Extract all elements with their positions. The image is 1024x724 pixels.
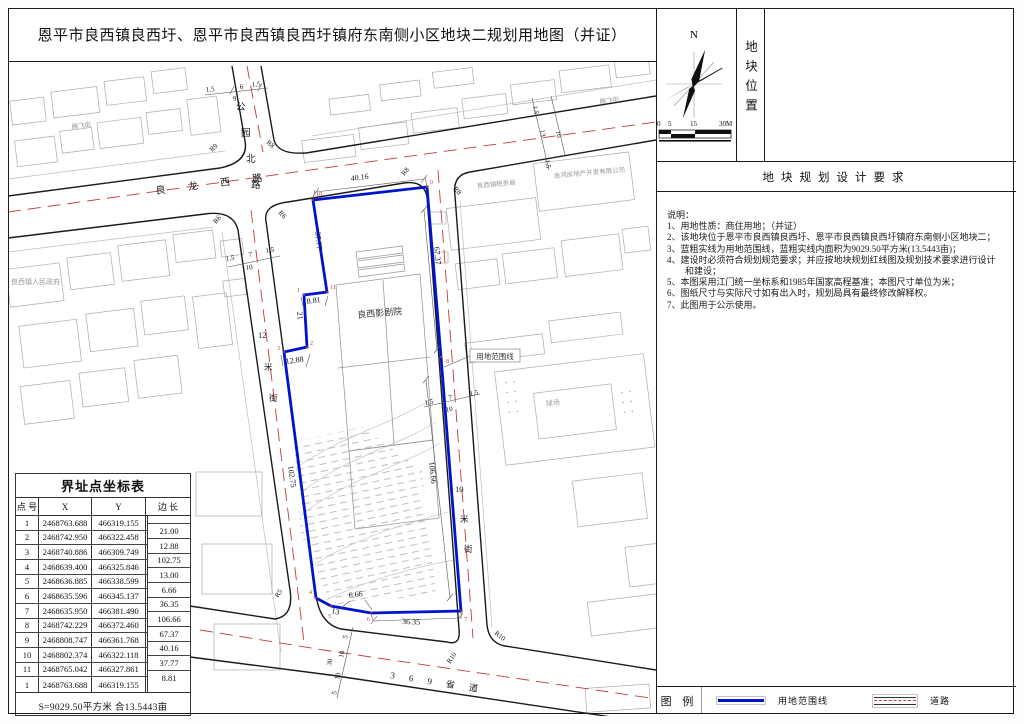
cell-x: 2468636.885 [39,575,92,589]
sheet-title: 恩平市良西镇良西圩、恩平市良西镇良西圩镇府东南侧小区地块二规划用地图（并证） [8,8,656,62]
table-row: 52468636.885466338.599 [16,575,147,590]
vertex-label: 7 [464,617,467,623]
sheet-title-text: 恩平市良西镇良西圩、恩平市良西镇良西圩镇府东南侧小区地块二规划用地图（并证） [37,24,626,45]
edge-length: 21.00 [148,523,190,538]
scale-tick: 5 [668,120,672,128]
cell-y: 466322.458 [92,531,146,545]
note-line: 2、该地块位于恩平市良西镇良西圩、恩平市良西镇良西圩镇府东南侧小区地块二； [667,232,1010,243]
location-label: 地块位置 [741,40,760,118]
requirements-header: 地块规划设计要求 [657,162,1016,192]
scale-tick: 30M [719,120,733,128]
road-name-gongyuan-1: 公 [236,102,246,113]
coordinate-rows: 12468763.688466319.155 22468742.95046632… [16,516,147,692]
cell-no: 1 [16,516,39,530]
road-name-street10-3: 街 [464,544,473,554]
coordinate-table-header: 点 号 X Y 边 长 [16,498,190,516]
road-name-gongyuan-4: 路 [251,179,261,191]
vertex-label: 1 [297,288,300,294]
label-government: 良西镇人民政府 [11,277,60,286]
edge-length: 102.75 [148,553,190,568]
edge-length: 67.37 [148,626,190,641]
vertex-label: 8 [446,359,449,365]
north-compass: N [657,8,735,160]
location-label-strip: 地块位置 [737,8,765,161]
cell-x: 2468635.950 [39,604,92,618]
cell-no: 7 [16,604,39,618]
width-label: 1.5 [265,246,275,255]
planning-drawing-sheet: 恩平市良西镇良西圩、恩平市良西镇良西圩镇府东南侧小区地块二规划用地图（并证） [0,0,1024,724]
table-row: 102468802.374466322.118 [16,648,147,663]
cell-no: 9 [16,633,39,647]
table-row: 112468765.042466327.861 [16,663,147,678]
cell-no: 2 [16,531,39,545]
cell-y: 466325.846 [92,560,146,574]
note-line: 1、用地性质：商住用地；（并证） [667,221,1010,232]
location-inset-map [765,8,1016,161]
notes-heading: 说明： [667,210,1010,221]
location-section: N [657,8,1016,162]
notes-block: 说明： 1、用地性质：商住用地；（并证） 2、该地块位于恩平市良西镇良西圩、恩平… [657,192,1016,311]
note-line: 4、建设时必须符合规划规范要求；并应按地块规划红线图及规划技术要求进行设计 [667,255,1010,266]
cell-no: 5 [16,575,39,589]
width-label: 1.5 [251,80,261,89]
dim-left-upper: 37.77 [313,231,324,250]
width-label: 1.5 [225,254,235,263]
road-name-gongyuan-3: 北 [246,154,256,165]
cell-no: 10 [16,648,39,662]
cell-x: 2468808.747 [39,633,92,647]
note-line: 5、本图采用江门统一坐标系和1985年国家高程基准；本图尺寸单位为米； [667,277,1010,288]
vertex-label: 4 [309,590,312,596]
cell-y: 466322.118 [92,648,146,662]
cell-y: 466372.460 [92,619,146,633]
note-line: 6、图纸尺寸与实际尺寸如有出入时，规划局具有最终修改解释权。 [667,288,1010,299]
edge-length: 37.77 [148,655,190,670]
cell-y: 466338.599 [92,575,146,589]
edge-length-column: 21.00 12.88 102.75 13.00 6.66 36.35 106.… [147,516,190,692]
vertex-label: 9 [430,180,433,186]
cell-no: 3 [16,545,39,559]
cell-y: 466319.155 [92,677,146,692]
table-row: 82468742.229466372.460 [16,619,147,634]
note-line: 7、此图用于公示使用。 [667,300,1010,311]
scale-tick-labels: 0 5 15 30M [657,120,733,128]
cell-x: 2468763.688 [39,677,92,692]
road-name-street12-3: 街 [269,393,278,403]
cell-no: 4 [16,560,39,574]
vertex-label: 6 [367,617,370,623]
legend-divider [701,687,702,714]
edge-length: 40.16 [148,641,190,656]
road-name-gongyuan-2: 园 [241,128,251,139]
boundary-line-sample [718,699,764,702]
scale-bar [659,130,731,142]
legend-title: 图 例 [657,693,701,709]
edge-length: 6.66 [148,582,190,597]
table-row: 92468808.747466361.768 [16,633,147,648]
cell-no: 1 [16,677,39,692]
cell-x: 2468802.374 [39,648,92,662]
vertex-label: 3 [277,346,280,352]
col-header-point: 点 号 [16,498,39,515]
road-name-street10-1: 10 [455,484,464,494]
table-row: 12468763.688466319.155 [16,516,147,531]
road-sample-line [874,697,916,698]
compass-box: N [657,8,737,161]
cell-x: 2468742.229 [39,619,92,633]
cell-y: 466309.749 [92,545,146,559]
table-row: 42468639.400466325.846 [16,560,147,575]
scale-tick: 15 [690,120,698,128]
col-header-y: Y [92,498,146,515]
table-row: 62468635.596466345.137 [16,589,147,604]
road-swatch [872,694,918,708]
table-row: 22468742.950466322.458 [16,531,147,546]
compass-rose-icon [662,43,726,125]
table-row: 72468635.950466381.490 [16,604,147,619]
cell-x: 2468763.688 [39,516,92,530]
vertex-label: 11 [330,285,336,291]
cell-x: 2468635.596 [39,589,92,603]
cell-x: 2468639.400 [39,560,92,574]
edge-length: 13.00 [148,567,190,582]
col-header-x: X [39,498,92,515]
vertex-label: 10 [316,192,322,198]
cell-x: 2468765.042 [39,663,92,677]
vertex-label: 5 [328,614,331,620]
coordinate-table-title: 界址点坐标表 [16,474,190,498]
coordinate-table: 界址点坐标表 点 号 X Y 边 长 12468763.688466319.15… [15,473,191,716]
cell-no: 11 [16,663,39,677]
cell-x: 2468740.886 [39,545,92,559]
dim-bottom: 36.35 [402,617,420,627]
label-court: 球场 [545,398,560,408]
width-label: 1.5 [205,85,215,94]
north-label: N [690,29,698,41]
note-line: 和建设； [667,266,1010,277]
road-sample-line [874,704,916,705]
area-summary: S=9029.50平方米 合13.5443亩 [16,692,190,718]
legend-road-label: 道路 [930,694,950,707]
table-row: 12468763.688466319.155 [16,677,147,692]
legend-bar: 图 例 用地范围线 道路 [657,686,1016,714]
edge-length: 36.35 [148,597,190,612]
road-name-street10-2: 米 [460,514,469,524]
edge-length: 8.81 [148,670,190,685]
cell-no: 6 [16,589,39,603]
dim-21: 21 [295,311,305,320]
cell-y: 466381.490 [92,604,146,618]
legend-boundary-label: 用地范围线 [778,694,828,707]
cell-no: 8 [16,619,39,633]
right-panel: N [656,8,1016,714]
scale-tick: 0 [657,120,661,128]
col-header-edge: 边 长 [146,498,190,515]
boundary-callout-label: 用地范围线 [476,351,514,361]
cell-y: 466361.768 [92,633,146,647]
road-name-street12-1: 12 [258,330,267,340]
edge-length: 106.66 [148,611,190,626]
note-line: 3、蓝粗实线为用地范围线，蓝粗实线内面积为9029.50平方米(13.5443亩… [667,244,1010,255]
cell-y: 466319.155 [92,516,146,530]
vertex-label: 2 [310,341,313,347]
cell-x: 2468742.950 [39,531,92,545]
cell-y: 466345.137 [92,589,146,603]
road-sample-centerline [874,700,916,701]
cell-y: 466327.861 [92,663,146,677]
dim-right-upper: 67.37 [432,246,443,265]
road-name-street12-2: 米 [264,362,273,372]
boundary-swatch [716,696,766,705]
table-row: 32468740.886466309.749 [16,545,147,560]
edge-length: 12.88 [148,538,190,553]
